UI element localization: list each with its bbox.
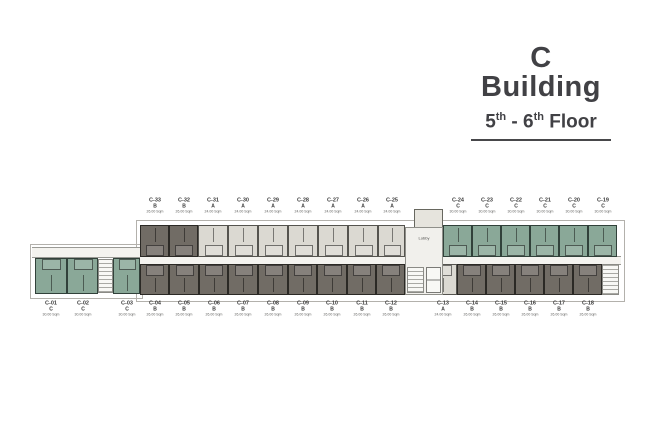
unit-C-04	[140, 264, 169, 295]
unit-label-C-03: C-03C30.00 Sqm	[111, 300, 143, 317]
unit-label-C-19: C-19C30.00 Sqm	[587, 197, 619, 214]
unit-label-C-26: C-26A24.00 Sqm	[347, 197, 379, 214]
unit-label-C-21: C-21C30.00 Sqm	[529, 197, 561, 214]
unit-type-text: B	[139, 203, 171, 209]
unit-area-text: 26.00 Sqm	[456, 313, 488, 317]
building-title: C Building	[468, 44, 614, 102]
unit-label-C-11: C-11B26.00 Sqm	[346, 300, 378, 317]
unit-label-C-32: C-32B26.00 Sqm	[168, 197, 200, 214]
unit-type-text: C	[587, 203, 619, 209]
unit-C-07	[228, 264, 258, 295]
unit-type-text: A	[347, 203, 379, 209]
floor-ordinal-start: th	[496, 111, 506, 123]
unit-label-C-09: C-09B26.00 Sqm	[287, 300, 319, 317]
floor-separator: -	[506, 111, 523, 132]
unit-area-text: 26.00 Sqm	[139, 313, 171, 317]
unit-type-text: C	[558, 203, 590, 209]
floor-number-end: 6	[523, 111, 534, 132]
unit-label-C-28: C-28A24.00 Sqm	[287, 197, 319, 214]
unit-type-text: B	[257, 306, 289, 312]
unit-type-text: B	[485, 306, 517, 312]
unit-area-text: 26.00 Sqm	[316, 313, 348, 317]
unit-type-text: B	[375, 306, 407, 312]
unit-C-32	[169, 225, 198, 257]
unit-area-text: 26.00 Sqm	[375, 313, 407, 317]
corridor-left-wing	[32, 247, 140, 258]
unit-area-text: 26.00 Sqm	[287, 313, 319, 317]
unit-area-text: 24.00 Sqm	[317, 210, 349, 214]
unit-C-23	[472, 225, 501, 257]
unit-C-26	[348, 225, 378, 257]
unit-area-text: 26.00 Sqm	[168, 210, 200, 214]
core-elevator	[426, 267, 441, 293]
unit-type-text: B	[456, 306, 488, 312]
unit-C-15	[486, 264, 515, 295]
right-end-stairs	[602, 264, 619, 295]
unit-area-text: 30.00 Sqm	[529, 210, 561, 214]
unit-label-C-02: C-02C30.00 Sqm	[67, 300, 99, 317]
unit-type-text: B	[346, 306, 378, 312]
unit-label-C-13: C-13A24.00 Sqm	[427, 300, 459, 317]
unit-label-C-06: C-06B26.00 Sqm	[198, 300, 230, 317]
unit-area-text: 24.00 Sqm	[347, 210, 379, 214]
unit-area-text: 26.00 Sqm	[485, 313, 517, 317]
unit-label-C-29: C-29A24.00 Sqm	[257, 197, 289, 214]
unit-label-C-17: C-17B26.00 Sqm	[543, 300, 575, 317]
unit-C-22	[501, 225, 530, 257]
unit-C-18	[573, 264, 602, 295]
unit-area-text: 26.00 Sqm	[514, 313, 546, 317]
unit-C-28	[288, 225, 318, 257]
unit-label-C-01: C-01C30.00 Sqm	[35, 300, 67, 317]
unit-C-05	[169, 264, 199, 295]
floor-ordinal-end: th	[534, 111, 544, 123]
unit-label-C-08: C-08B26.00 Sqm	[257, 300, 289, 317]
unit-area-text: 30.00 Sqm	[471, 210, 503, 214]
floor-word: Floor	[544, 111, 597, 132]
lobby-label: Lobby	[415, 236, 433, 241]
unit-area-text: 30.00 Sqm	[111, 313, 143, 317]
unit-C-33	[140, 225, 169, 257]
unit-type-text: A	[227, 203, 259, 209]
unit-C-25	[378, 225, 405, 257]
unit-area-text: 24.00 Sqm	[427, 313, 459, 317]
unit-label-C-22: C-22C30.00 Sqm	[500, 197, 532, 214]
unit-area-text: 26.00 Sqm	[346, 313, 378, 317]
unit-area-text: 26.00 Sqm	[572, 313, 604, 317]
unit-C-06	[199, 264, 228, 295]
unit-label-C-30: C-30A24.00 Sqm	[227, 197, 259, 214]
unit-area-text: 24.00 Sqm	[197, 210, 229, 214]
unit-label-C-25: C-25A24.00 Sqm	[376, 197, 408, 214]
unit-label-C-24: C-24C30.00 Sqm	[442, 197, 474, 214]
unit-type-text: B	[543, 306, 575, 312]
unit-type-text: B	[168, 306, 200, 312]
unit-area-text: 26.00 Sqm	[257, 313, 289, 317]
unit-type-text: A	[427, 306, 459, 312]
unit-C-29	[258, 225, 288, 257]
unit-area-text: 26.00 Sqm	[543, 313, 575, 317]
unit-C-21	[530, 225, 559, 257]
unit-type-text: A	[257, 203, 289, 209]
plan-header: C Building 5th - 6th Floor	[468, 44, 614, 141]
unit-C-01	[35, 258, 67, 294]
unit-area-text: 30.00 Sqm	[67, 313, 99, 317]
title-underline	[471, 139, 611, 141]
unit-C-09	[288, 264, 317, 295]
unit-type-text: A	[197, 203, 229, 209]
unit-label-C-07: C-07B26.00 Sqm	[227, 300, 259, 317]
unit-label-C-20: C-20C30.00 Sqm	[558, 197, 590, 214]
unit-area-text: 24.00 Sqm	[376, 210, 408, 214]
unit-type-text: B	[514, 306, 546, 312]
floor-subtitle: 5th - 6th Floor	[468, 112, 614, 131]
unit-C-27	[318, 225, 348, 257]
unit-type-text: C	[67, 306, 99, 312]
unit-C-24	[443, 225, 472, 257]
unit-area-text: 24.00 Sqm	[287, 210, 319, 214]
unit-type-text: C	[500, 203, 532, 209]
unit-label-C-15: C-15B26.00 Sqm	[485, 300, 517, 317]
unit-area-text: 26.00 Sqm	[139, 210, 171, 214]
unit-C-03	[113, 258, 140, 294]
unit-type-text: C	[442, 203, 474, 209]
unit-type-text: C	[35, 306, 67, 312]
unit-C-08	[258, 264, 288, 295]
unit-label-C-12: C-12B26.00 Sqm	[375, 300, 407, 317]
unit-type-text: B	[168, 203, 200, 209]
unit-area-text: 24.00 Sqm	[257, 210, 289, 214]
unit-type-text: C	[471, 203, 503, 209]
unit-label-C-33: C-33B26.00 Sqm	[139, 197, 171, 214]
unit-label-C-10: C-10B26.00 Sqm	[316, 300, 348, 317]
unit-area-text: 30.00 Sqm	[558, 210, 590, 214]
unit-type-text: A	[317, 203, 349, 209]
unit-label-C-04: C-04B26.00 Sqm	[139, 300, 171, 317]
unit-C-02	[67, 258, 98, 294]
unit-type-text: A	[376, 203, 408, 209]
floor-number-start: 5	[485, 111, 496, 132]
unit-type-text: C	[111, 306, 143, 312]
core-protrusion	[414, 209, 443, 228]
unit-C-20	[559, 225, 588, 257]
unit-type-text: C	[529, 203, 561, 209]
unit-C-12	[376, 264, 405, 295]
unit-C-19	[588, 225, 617, 257]
unit-type-text: B	[572, 306, 604, 312]
unit-area-text: 30.00 Sqm	[587, 210, 619, 214]
unit-type-text: B	[227, 306, 259, 312]
unit-type-text: A	[287, 203, 319, 209]
unit-label-C-18: C-18B26.00 Sqm	[572, 300, 604, 317]
unit-area-text: 26.00 Sqm	[198, 313, 230, 317]
unit-area-text: 26.00 Sqm	[227, 313, 259, 317]
unit-C-10	[317, 264, 347, 295]
unit-label-C-27: C-27A24.00 Sqm	[317, 197, 349, 214]
unit-label-C-31: C-31A24.00 Sqm	[197, 197, 229, 214]
unit-C-31	[198, 225, 228, 257]
unit-label-C-05: C-05B26.00 Sqm	[168, 300, 200, 317]
unit-C-11	[347, 264, 376, 295]
unit-area-text: 26.00 Sqm	[168, 313, 200, 317]
floorplan-page: C Building 5th - 6th Floor Lobby C-33B26…	[0, 0, 661, 427]
unit-type-text: B	[198, 306, 230, 312]
unit-C-14	[457, 264, 486, 295]
unit-area-text: 24.00 Sqm	[227, 210, 259, 214]
unit-C-30	[228, 225, 258, 257]
unit-C-16	[515, 264, 544, 295]
unit-label-C-14: C-14B26.00 Sqm	[456, 300, 488, 317]
unit-type-text: B	[287, 306, 319, 312]
unit-area-text: 30.00 Sqm	[442, 210, 474, 214]
core-stairs	[407, 267, 424, 293]
unit-type-text: B	[139, 306, 171, 312]
unit-label-C-23: C-23C30.00 Sqm	[471, 197, 503, 214]
unit-type-text: B	[316, 306, 348, 312]
left-wing-stairs	[98, 259, 113, 293]
unit-C-17	[544, 264, 573, 295]
unit-label-C-16: C-16B26.00 Sqm	[514, 300, 546, 317]
unit-area-text: 30.00 Sqm	[500, 210, 532, 214]
unit-area-text: 30.00 Sqm	[35, 313, 67, 317]
